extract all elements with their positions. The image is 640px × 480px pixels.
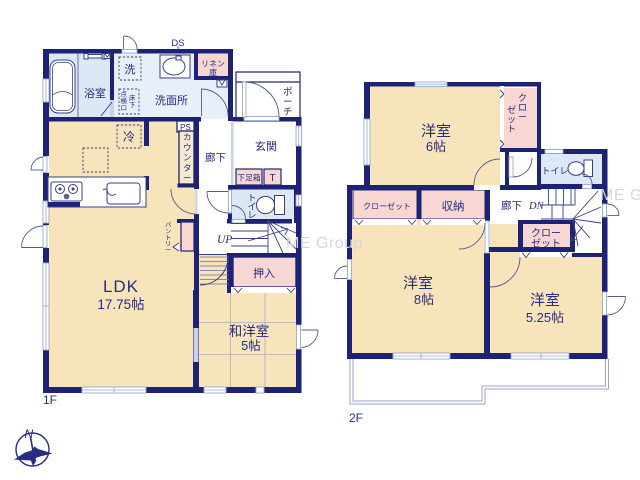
svg-text:T: T [269, 173, 275, 184]
svg-text:トイレ: トイレ [248, 193, 257, 220]
svg-text:点検口: 点検口 [121, 90, 128, 112]
svg-text:庫: 庫 [209, 68, 217, 78]
svg-text:2F: 2F [349, 411, 363, 425]
svg-text:17.75帖: 17.75帖 [97, 297, 144, 312]
svg-text:1F: 1F [43, 393, 57, 407]
svg-text:玄関: 玄関 [255, 139, 277, 153]
svg-text:収納: 収納 [442, 200, 465, 213]
svg-text:洋室: 洋室 [403, 275, 433, 292]
svg-text:リネン: リネン [201, 60, 225, 69]
svg-text:6帖: 6帖 [426, 139, 446, 154]
svg-text:5.25帖: 5.25帖 [526, 310, 564, 325]
svg-text:クロー: クロー [531, 228, 561, 240]
svg-text:トイレ: トイレ [542, 166, 569, 176]
svg-text:廊下: 廊下 [205, 151, 226, 164]
svg-text:カウンター: カウンター [183, 132, 192, 183]
svg-text:和洋室: 和洋室 [229, 323, 270, 339]
svg-text:床下: 床下 [129, 93, 136, 109]
svg-text:パントリー: パントリー [165, 222, 171, 255]
svg-text:洋室: 洋室 [530, 292, 560, 309]
svg-text:ゼット: ゼット [531, 238, 561, 250]
svg-text:クローゼット: クローゼット [363, 201, 411, 211]
svg-text:N: N [25, 427, 34, 441]
svg-text:洋室: 洋室 [421, 123, 451, 140]
svg-text:洗: 洗 [125, 63, 136, 76]
svg-text:5帖: 5帖 [241, 338, 260, 353]
svg-text:洗面所: 洗面所 [155, 94, 188, 107]
svg-text:ポーチ: ポーチ [283, 87, 293, 118]
svg-text:8帖: 8帖 [414, 292, 434, 307]
svg-text:浴室: 浴室 [84, 86, 106, 100]
svg-text:下足箱: 下足箱 [237, 173, 261, 183]
svg-text:廊下: 廊下 [501, 199, 522, 212]
svg-text:LDK: LDK [103, 277, 139, 296]
svg-text:PS: PS [180, 123, 191, 132]
svg-text:クロー: クロー [518, 93, 527, 122]
svg-text:DN: DN [528, 201, 545, 212]
svg-text:押入: 押入 [253, 266, 275, 280]
svg-text:ME Group: ME Group [286, 235, 363, 252]
svg-text:ME Gro: ME Gro [600, 187, 640, 204]
svg-text:UP: UP [217, 234, 232, 246]
svg-text:冷: 冷 [123, 130, 135, 144]
svg-text:ゼット: ゼット [507, 104, 516, 134]
